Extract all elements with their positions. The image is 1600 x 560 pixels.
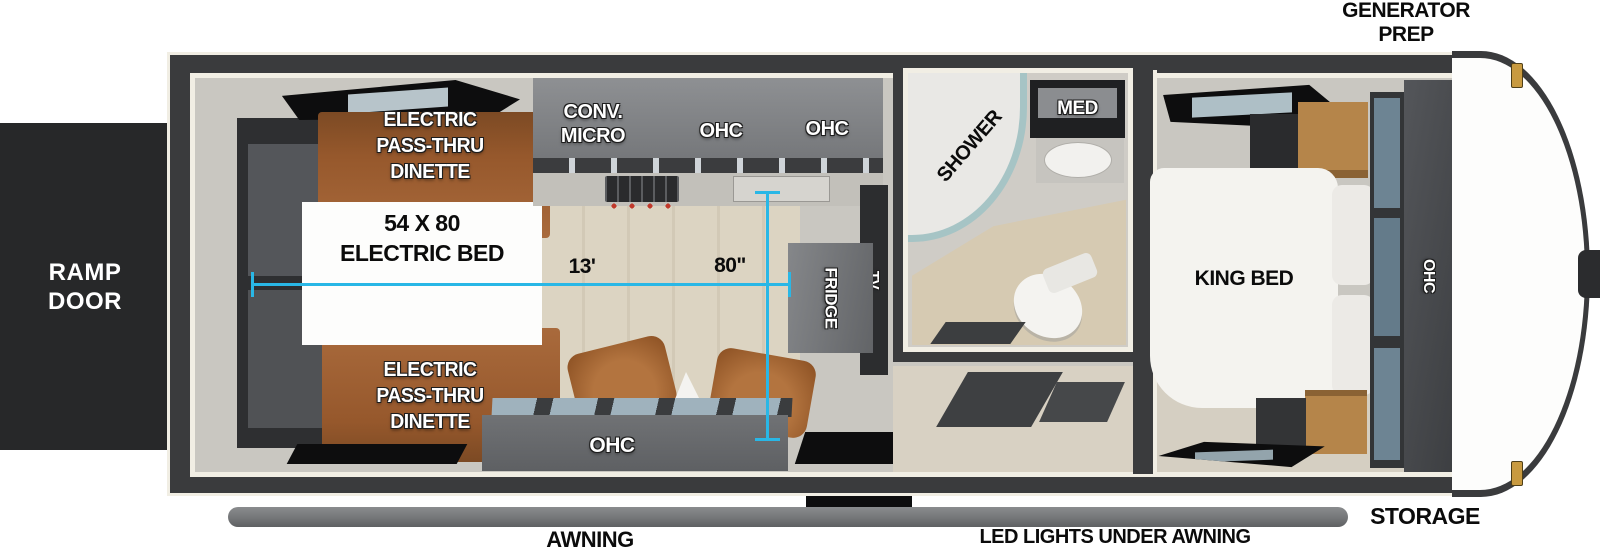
wardrobe-ohc-label: OHC <box>1232 252 1600 300</box>
ohc-kitchen-left-label: OHC <box>690 117 752 145</box>
wardrobe-glass-upper <box>1370 92 1404 342</box>
kitchen-counter <box>533 173 883 206</box>
floorplan-diagram: RAMP DOOR GENERATOR PREP AWNING LED LIGH… <box>0 0 1600 560</box>
med-label: MED <box>1030 80 1125 138</box>
fridge: FRIDGE <box>788 243 873 353</box>
dimension-cap-right <box>788 272 791 297</box>
dimension-cap-bottom <box>755 438 780 441</box>
storage-label: STORAGE <box>1358 503 1492 529</box>
wardrobe: OHC <box>1404 80 1452 472</box>
bath-sink-icon <box>1044 142 1112 178</box>
ramp-door-label: DOOR <box>48 287 122 316</box>
ohc-sofa-label: OHC <box>577 432 647 460</box>
dimension-line-vertical <box>766 193 769 440</box>
awning-bar <box>228 507 1348 527</box>
wardrobe-glass-lower <box>1370 342 1404 468</box>
kitchen-sink <box>733 176 830 202</box>
hinge-top-icon <box>1511 63 1523 88</box>
dim-length-label: 13' <box>550 254 614 280</box>
awning-label: AWNING <box>528 527 652 553</box>
electric-bed-label: 54 X 80 ELECTRIC BED <box>302 206 542 270</box>
floor-mat <box>287 444 468 464</box>
led-lights-label: LED LIGHTS UNDER AWNING <box>955 525 1275 549</box>
dimension-cap-top <box>755 191 780 194</box>
generator-prep-label: GENERATOR PREP <box>1330 0 1482 48</box>
dim-width-label: 80" <box>698 253 762 279</box>
dimension-line-horizontal <box>253 283 791 286</box>
dimension-cap-left <box>251 272 254 297</box>
dinette-top-label: ELECTRIC PASS-THRU DINETTE <box>338 106 522 186</box>
stove-icon <box>605 176 679 202</box>
stove-knobs-icon <box>608 203 678 209</box>
ramp-door-panel: RAMP DOOR <box>0 123 170 450</box>
kitchen-cabinet-underside <box>533 158 883 173</box>
bedroom-cabinet-wood <box>1298 102 1368 178</box>
med-cabinet: MED <box>1030 80 1125 138</box>
conv-micro-label: CONV. MICRO <box>538 98 648 150</box>
hinge-bottom-icon <box>1511 461 1523 486</box>
bedroom-cabinet-dark <box>1250 114 1298 170</box>
nightstand-dark <box>1256 398 1306 450</box>
ramp-door-label: RAMP <box>49 258 122 287</box>
bath-mat <box>930 322 1025 344</box>
fridge-label: FRIDGE <box>776 256 886 341</box>
pillow-icon <box>1332 295 1374 395</box>
ohc-kitchen-right-label: OHC <box>796 115 858 143</box>
nightstand-wood <box>1305 390 1367 454</box>
